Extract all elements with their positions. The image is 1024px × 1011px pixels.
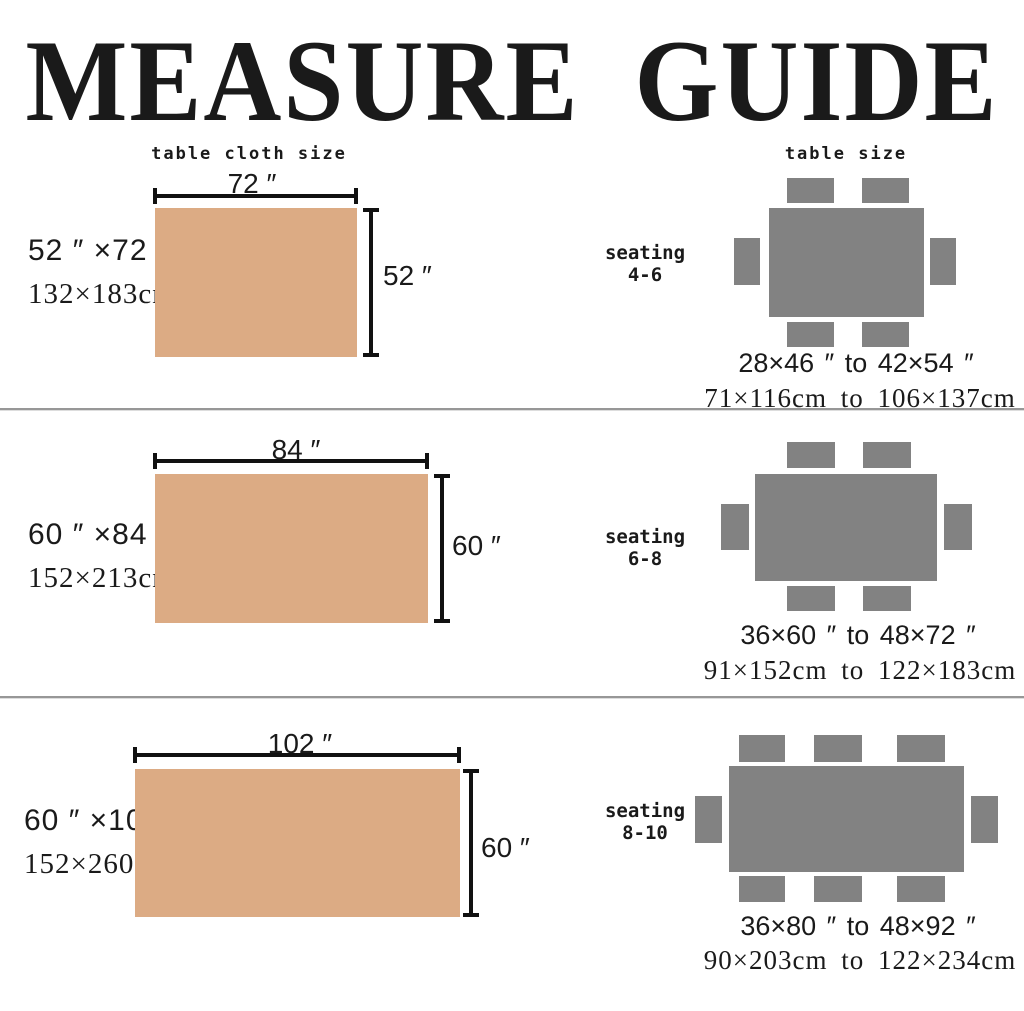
dining-table xyxy=(729,766,964,872)
chair xyxy=(862,178,909,203)
chair xyxy=(721,504,749,550)
height-dimension-label: 52 ″ xyxy=(383,260,432,292)
seating-range: 8-10 xyxy=(605,822,685,844)
seating-label: seating 4-6 xyxy=(605,242,685,287)
cloth-size-inches: 60 ″ ×84 ″ xyxy=(28,518,169,552)
cloth-rectangle xyxy=(155,208,357,357)
chair xyxy=(739,876,785,902)
cloth-size-cm: 132×183cm xyxy=(28,278,176,311)
table-size-range-inches: 28×46 ″ to 42×54 ″ xyxy=(738,348,973,379)
chair xyxy=(814,876,862,902)
seating-range: 6-8 xyxy=(605,548,685,570)
chair xyxy=(787,586,835,611)
chair xyxy=(944,504,972,550)
height-dimension-label: 60 ″ xyxy=(452,530,501,562)
height-dimension-line xyxy=(440,474,444,623)
width-dimension-label: 102 ″ xyxy=(268,728,332,760)
measure-guide: MEASURE GUIDE table cloth size table siz… xyxy=(0,0,1024,1011)
table-size-range-cm: 91×152cm to 122×183cm xyxy=(704,655,1016,686)
chair xyxy=(862,322,909,347)
height-dimension-line xyxy=(469,769,473,917)
chair xyxy=(734,238,760,285)
chair xyxy=(863,442,911,468)
chair xyxy=(971,796,998,843)
width-dimension-label: 72 ″ xyxy=(228,168,277,200)
chair xyxy=(814,735,862,762)
column-header-tablecloth: table cloth size xyxy=(151,144,347,164)
chair xyxy=(897,735,945,762)
width-dimension-label: 84 ″ xyxy=(272,434,321,466)
cloth-rectangle xyxy=(155,474,428,623)
row-divider xyxy=(0,696,1024,699)
seating-label: seating 6-8 xyxy=(605,526,685,571)
seating-word: seating xyxy=(605,526,685,548)
cloth-rectangle xyxy=(135,769,460,917)
seating-label: seating 8-10 xyxy=(605,800,685,845)
table-size-range-inches: 36×80 ″ to 48×92 ″ xyxy=(740,911,975,942)
cloth-size-cm: 152×213cm xyxy=(28,562,176,595)
chair xyxy=(787,178,834,203)
cloth-size-inches: 52 ″ ×72 ″ xyxy=(28,234,169,268)
chair xyxy=(863,586,911,611)
seating-word: seating xyxy=(605,242,685,264)
chair xyxy=(930,238,956,285)
table-size-range-cm: 90×203cm to 122×234cm xyxy=(704,945,1016,976)
column-header-table: table size xyxy=(785,144,907,164)
table-size-range-inches: 36×60 ″ to 48×72 ″ xyxy=(740,620,975,651)
chair xyxy=(695,796,722,843)
dining-table xyxy=(769,208,924,317)
seating-range: 4-6 xyxy=(605,264,685,286)
page-title: MEASURE GUIDE xyxy=(0,24,1024,141)
chair xyxy=(787,322,834,347)
dining-table xyxy=(755,474,937,581)
chair xyxy=(739,735,785,762)
row-divider xyxy=(0,408,1024,411)
height-dimension-label: 60 ″ xyxy=(481,832,530,864)
chair xyxy=(897,876,945,902)
height-dimension-line xyxy=(369,208,373,357)
chair xyxy=(787,442,835,468)
seating-word: seating xyxy=(605,800,685,822)
